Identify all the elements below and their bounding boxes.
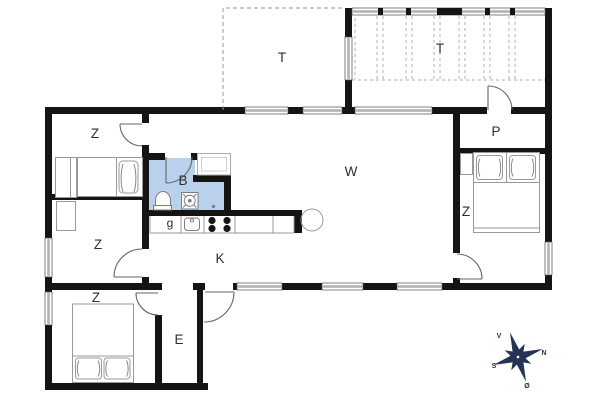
closet-niche <box>198 154 231 176</box>
door-bedroom-w <box>114 249 142 277</box>
terrace-roof-lines <box>223 8 545 110</box>
room-label-bedroom-nw: Z <box>91 126 99 141</box>
window <box>397 283 442 290</box>
room-label-bedroom-e: Z <box>462 204 470 219</box>
window <box>45 238 52 277</box>
door-entry <box>204 292 234 322</box>
window <box>545 242 552 275</box>
window <box>303 107 342 114</box>
compass-label-s: S <box>492 363 497 370</box>
window <box>322 283 363 290</box>
room-label-living: W <box>345 164 358 179</box>
room-label-entry: E <box>174 332 183 347</box>
shower-icon <box>182 193 199 210</box>
wardrobe-nw <box>56 158 77 198</box>
compass-rose: V N S Ø <box>485 324 551 390</box>
wardrobe-w <box>57 202 76 231</box>
compass-label-v: V <box>497 333 502 340</box>
floor-plan: T T Z Z Z Z P W B g K E V N S Ø <box>0 0 600 400</box>
window <box>245 107 288 114</box>
door-bedroom-sw <box>136 293 158 315</box>
bed-single-nw <box>78 158 143 197</box>
room-label-kitchen: K <box>215 251 224 266</box>
stove-icon <box>208 217 230 232</box>
compass-star <box>485 324 551 390</box>
window <box>45 292 52 325</box>
bed-double-e <box>474 153 540 233</box>
bed-double-sw <box>73 304 134 383</box>
terrace-glazing <box>352 8 545 15</box>
door-terrace <box>488 86 512 110</box>
nightstand-e <box>461 154 473 175</box>
compass-label-n: N <box>541 350 546 357</box>
door-bedroom-nw <box>120 124 142 146</box>
furniture <box>56 153 540 383</box>
room-label-terrace-open: T <box>278 50 286 65</box>
room-label-p: P <box>491 124 500 139</box>
terrace-door-gap <box>487 107 511 114</box>
window <box>345 37 352 80</box>
room-label-bath: B <box>178 173 187 188</box>
room-label-g: g <box>167 216 174 230</box>
window <box>355 107 432 114</box>
room-label-terrace-covered: T <box>436 41 444 56</box>
window <box>237 283 282 290</box>
door-bedroom-e <box>457 254 482 279</box>
floor-plan-page: T T Z Z Z Z P W B g K E V N S Ø <box>0 0 600 400</box>
compass-label-o: Ø <box>524 383 530 390</box>
round-table-icon <box>301 209 323 231</box>
room-label-bedroom-w: Z <box>94 237 102 252</box>
sink-icon <box>185 218 200 231</box>
room-label-bedroom-sw: Z <box>92 290 100 305</box>
floor-drain-icon <box>212 205 215 208</box>
